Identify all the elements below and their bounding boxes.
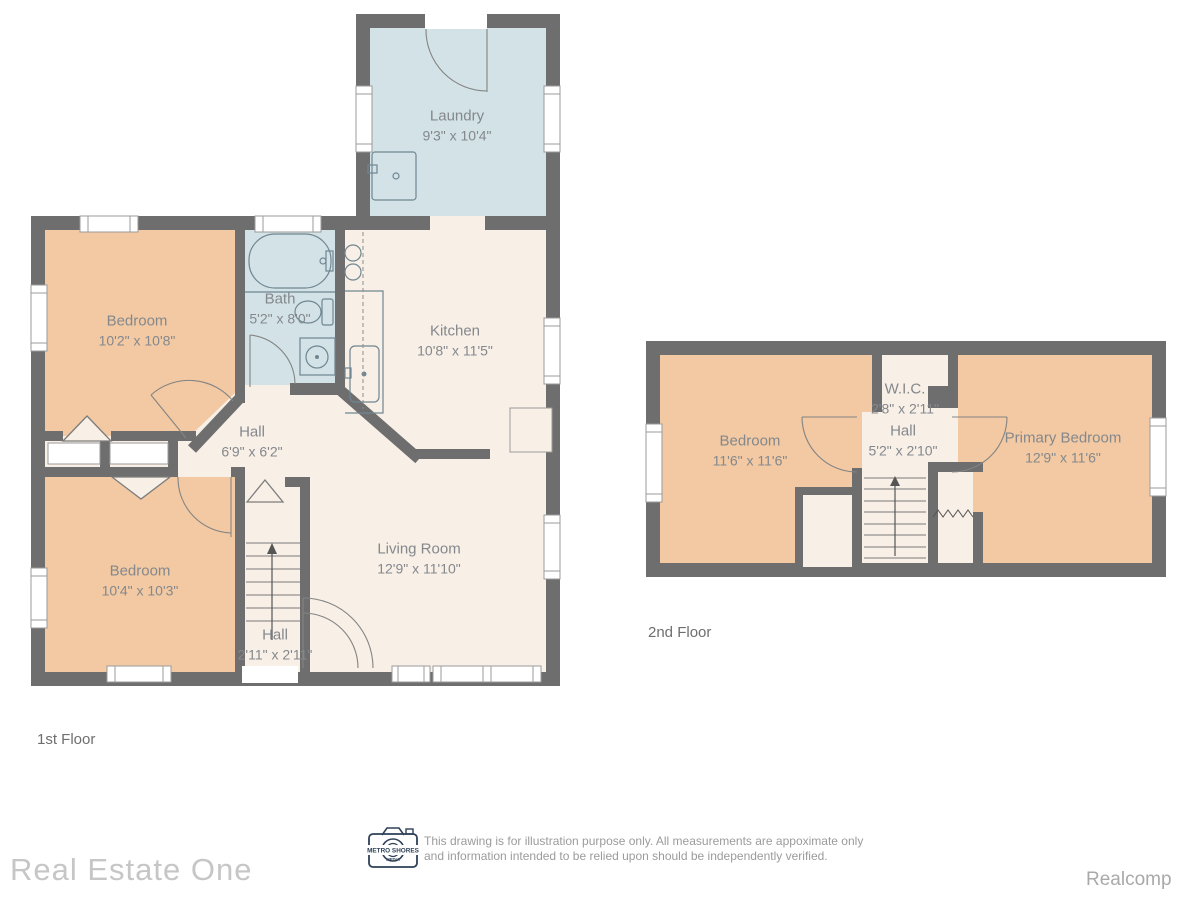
closet-box <box>48 443 100 464</box>
first-floor-label: 1st Floor <box>37 731 95 748</box>
laundry-kitchen-opening <box>430 216 485 232</box>
realcomp-watermark: Realcomp <box>1086 869 1172 891</box>
logo-subtext: MEDIA <box>386 857 400 862</box>
logo-text: METRO SHORES <box>367 848 420 855</box>
second-floor-label: 2nd Floor <box>648 624 711 641</box>
bedroom-bottom-floor <box>45 477 235 672</box>
floor-plan-page: METRO SHORES MEDIA Laundry 9'3" x 10'4" … <box>0 0 1200 900</box>
metro-shores-logo: METRO SHORES MEDIA <box>366 828 420 867</box>
real-estate-one-watermark: Real Estate One <box>10 852 252 888</box>
closet-2f-floor <box>803 495 852 567</box>
closet-box <box>110 443 168 464</box>
second-floor-plan <box>646 341 1166 577</box>
laundry-door-opening <box>425 14 487 29</box>
laundry-floor <box>370 28 546 216</box>
front-door-opening <box>242 666 298 683</box>
floor-plan-drawing: METRO SHORES MEDIA <box>0 0 1200 900</box>
first-floor-plan <box>31 14 560 686</box>
bedroom-top-floor <box>45 230 235 436</box>
pantry-icon <box>510 408 552 452</box>
disclaimer-text: This drawing is for illustration purpose… <box>424 834 863 863</box>
